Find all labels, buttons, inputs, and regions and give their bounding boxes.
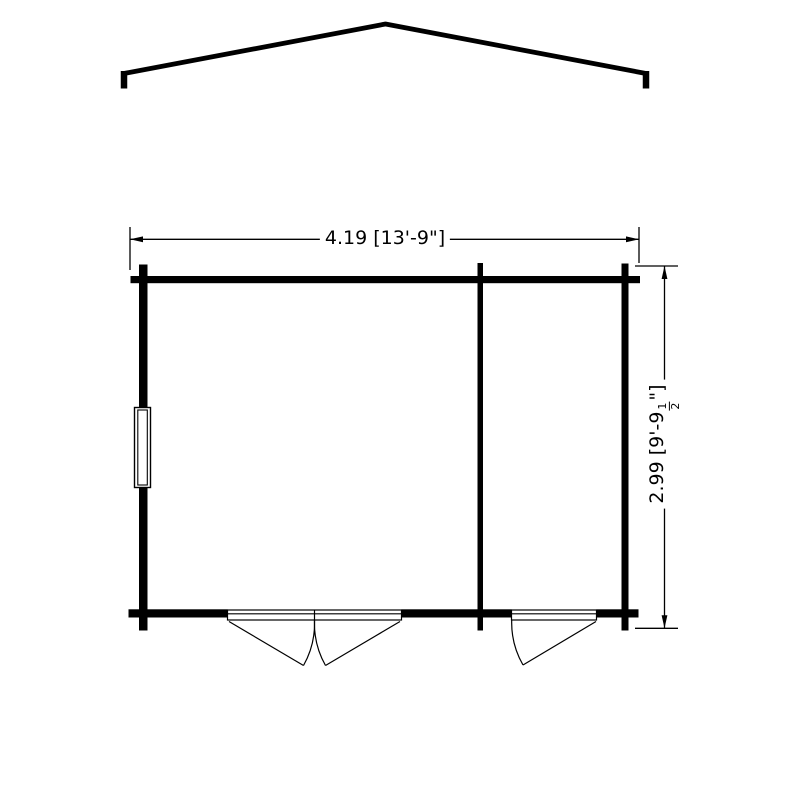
fraction-denominator: 2 (669, 402, 682, 411)
width-dimension-label: 4.19 [13'-9"] (320, 228, 450, 250)
wall-bottom-middle-segment (402, 609, 512, 617)
depth-dimension-text-prefix: 2.99 [9'-9 (646, 412, 668, 504)
double-door (228, 610, 402, 666)
width-arrow-left (130, 236, 143, 242)
floor-plan-canvas: 4.19 [13'-9"] 2.99 [9'-912"] (0, 0, 800, 800)
double-door-right-leaf (326, 622, 401, 666)
depth-dimension-fraction: 12 (657, 402, 681, 411)
depth-dimension-text-suffix: "] (646, 384, 668, 400)
partition-wall-bar (478, 263, 484, 631)
wall-right (622, 264, 629, 631)
single-door-swing-arc (512, 621, 523, 666)
width-arrow-right (626, 236, 639, 242)
window-outer-frame (135, 408, 151, 488)
single-door-leaf (523, 622, 596, 666)
depth-arrow-bottom (662, 615, 668, 628)
width-dimension-text: 4.19 [13'-9"] (325, 227, 445, 249)
single-door (512, 610, 597, 665)
depth-arrow-top (662, 266, 668, 279)
single-door-frame (512, 610, 597, 620)
depth-dimension-label: 2.99 [9'-912"] (647, 379, 681, 508)
wall-bottom-right-segment (597, 609, 639, 617)
wall-bottom-left-segment (129, 609, 228, 617)
roof-outline (124, 24, 646, 89)
window (135, 408, 151, 488)
double-door-left-leaf (229, 622, 304, 666)
wall-top (131, 276, 641, 283)
fraction-numerator: 1 (657, 403, 669, 410)
double-door-left-swing-arc (304, 621, 315, 666)
exterior-walls (129, 264, 641, 631)
partition-wall (478, 263, 484, 631)
double-door-right-swing-arc (314, 621, 325, 666)
